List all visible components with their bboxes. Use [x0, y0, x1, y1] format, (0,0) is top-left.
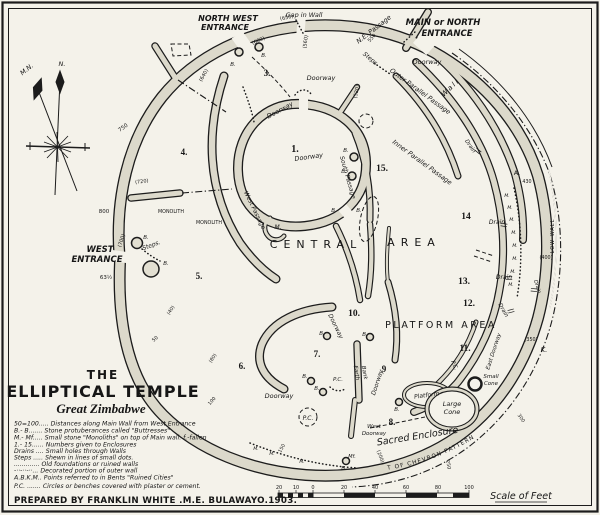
label-central-area: AREA [387, 236, 441, 249]
label-b-2: B. [261, 53, 267, 59]
label-low-wall: LOW WALL [550, 219, 556, 254]
scale-tick-10l: 10 [293, 485, 299, 491]
scale-tick-20l: 20 [276, 485, 282, 491]
label-large-cone-1: Large [443, 400, 461, 408]
label-drain-2: Drain [489, 219, 505, 226]
label-m-e4: M. [511, 230, 516, 236]
label-pc-1: P.C. [333, 377, 343, 383]
label-dist-430: 430 [522, 179, 531, 185]
elliptical-temple-plan: NORTH WEST ENTRANCE Gap in Wall MAIN or … [0, 0, 600, 515]
label-west-doorway-2: Doorway [362, 431, 387, 437]
label-small-cone-2: Cone [484, 381, 499, 387]
label-monolith-2: MONOLITH [196, 220, 222, 226]
scale-of-feet-label: Scale of Feet [490, 491, 553, 502]
label-m-s2: M. [269, 451, 274, 457]
label-platform-area: PLATFORM AREA [385, 320, 497, 331]
label-enclosure-3: 3. [264, 68, 271, 78]
credit-line: PREPARED BY FRANKLIN WHITE .M.E. BULAWAY… [14, 496, 297, 506]
scale-tick-0: 0 [311, 485, 314, 491]
title-main: ELLIPTICAL TEMPLE [6, 382, 199, 401]
label-b-5: B. [343, 148, 349, 154]
label-b-7: B. [331, 208, 337, 214]
label-dist-800: 800 [99, 209, 110, 215]
label-central: CENTRAL [270, 238, 362, 251]
scale-tick-100: 100 [464, 485, 474, 491]
label-enclosure-15: 15. [376, 164, 388, 174]
gap-in-wall [296, 19, 305, 36]
label-b-14: B. [341, 466, 347, 472]
label-m-s3: M. [299, 459, 304, 465]
label-west-entrance-1: WEST [86, 245, 114, 255]
title-sub: Great Zimbabwe [56, 401, 145, 416]
label-enclosure-13: 13. [458, 277, 470, 287]
label-pc-2: P.C. [303, 415, 314, 422]
label-main-entrance-1: MAIN or NORTH [406, 18, 481, 28]
legend-line-1: 50=100..... Distances along Main Wall fr… [14, 420, 196, 428]
scale-tick-60: 60 [403, 485, 409, 491]
label-m-e5: M. [512, 243, 517, 249]
label-b-12: B. [314, 386, 320, 392]
map-sheet: NORTH WEST ENTRANCE Gap in Wall MAIN or … [0, 0, 600, 515]
label-b-6: B. [341, 169, 347, 175]
label-north-west-entrance-1: NORTH WEST [198, 14, 258, 23]
enclosure1-north-doorway-gap [299, 97, 308, 110]
small-cone [469, 378, 482, 391]
label-m-e8: M. [508, 282, 513, 288]
scale-tick-80: 80 [435, 485, 441, 491]
legend-line-3: M.- Mf..... Small stone "Monoliths" on t… [14, 434, 207, 442]
label-b-8: B. [356, 208, 362, 214]
title-the: THE [87, 368, 119, 382]
label-west-doorway-1: West [367, 424, 382, 430]
label-b-11: B. [302, 374, 308, 380]
label-monolith-1: MONOLITH [158, 209, 184, 215]
label-point-k: K. [541, 346, 548, 354]
label-b-9: B. [319, 331, 325, 337]
label-dist-63: 63½ [100, 274, 112, 281]
label-m-e6: M. [512, 256, 517, 262]
label-enclosure-7: 7. [314, 349, 321, 359]
label-monolith-m: M. [274, 224, 281, 231]
label-enclosure-4: 4. [181, 147, 188, 157]
label-mf: Mf. [348, 454, 356, 460]
label-b-13: B. [394, 407, 400, 413]
label-m-e1: M. [504, 193, 509, 199]
label-m-e2: M. [507, 205, 512, 211]
label-doorway-sw: Doorway [265, 392, 294, 400]
label-enclosure-8: 8. [389, 417, 396, 427]
label-doorway-e3: Doorway [307, 74, 336, 82]
label-main-entrance-2: ENTRANCE [422, 29, 473, 39]
label-b-4: B. [163, 261, 169, 267]
label-doorway-north: Doorway [413, 58, 442, 66]
legend-line-10: P.C. ....... Circles or benches covered … [14, 482, 201, 490]
label-large-cone-2: Cone [444, 408, 461, 416]
label-enclosure-14: 14 [461, 212, 471, 222]
label-enclosure-11: 11. [459, 344, 470, 354]
label-point-a: A. [514, 169, 520, 177]
label-m-s1: M. [253, 446, 258, 452]
label-m-e3: M. [509, 217, 514, 223]
legend-line-2: B.- B....... Stone protuberances called … [14, 427, 170, 435]
label-enclosure-1: 1. [291, 144, 299, 155]
label-enclosure-5: 5. [196, 271, 203, 281]
label-dist-400: (400) [540, 255, 553, 261]
label-b-3: B. [143, 235, 149, 241]
label-north-west-entrance-2: ENTRANCE [201, 23, 250, 32]
label-enclosure-6: 6. [239, 361, 246, 371]
label-small-cone-1: Small [483, 374, 499, 380]
scale-tick-20: 20 [341, 485, 347, 491]
label-b-10: B. [362, 332, 368, 338]
scale-tick-40: 40 [372, 485, 378, 491]
label-drain-3: Drain [496, 274, 512, 281]
label-enclosure-12: 12. [463, 299, 475, 309]
legend-line-8: -··-··-··... Decorated portion of outer … [14, 467, 138, 475]
label-m-e7: M. [510, 269, 515, 275]
label-compass-n: N. [59, 60, 66, 68]
label-b-1: B. [230, 62, 236, 68]
label-dist-350: (350) [525, 337, 538, 343]
label-west-entrance-2: ENTRANCE [72, 255, 123, 265]
label-enclosure-10: 10. [348, 309, 360, 319]
legend-line-9: A.B.K.M.. Points referred to in Bents "R… [13, 474, 174, 482]
